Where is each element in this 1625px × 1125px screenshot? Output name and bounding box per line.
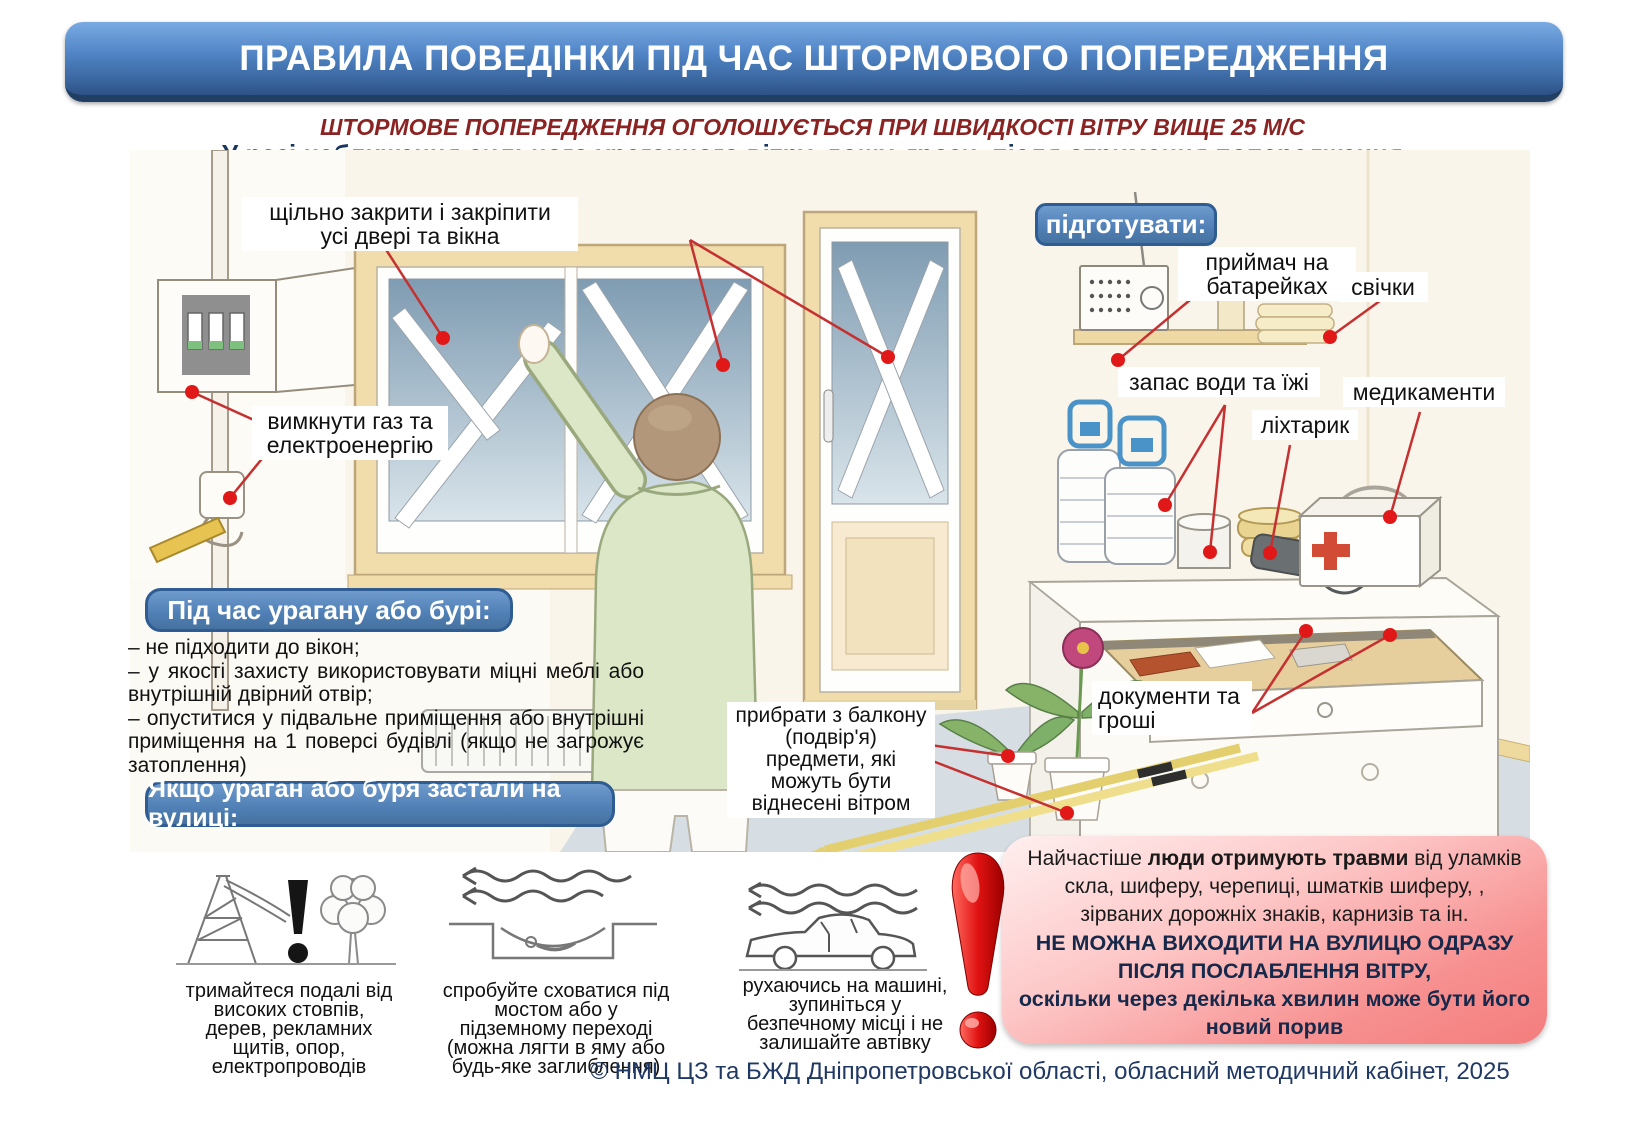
storm-condition-subtitle: ШТОРМОВЕ ПОПЕРЕДЖЕННЯ ОГОЛОШУЄТЬСЯ ПРИ Ш…	[0, 114, 1625, 141]
electrical-panel	[158, 268, 355, 392]
power-line-and-tree-icon	[168, 860, 403, 980]
warning-line-3: зірваних дорожніх знаків, карнизів та ін…	[1002, 901, 1547, 929]
car-in-wind-icon	[733, 878, 933, 978]
storm-safety-poster: ПРАВИЛА ПОВЕДІНКИ ПІД ЧАС ШТОРМОВОГО ПОП…	[0, 0, 1625, 1125]
cup	[1218, 300, 1244, 330]
warning-line-6: оскільки через декілька хвилин може бути…	[1002, 985, 1547, 1013]
during-storm-item: – у якості захисту використовувати міцні…	[128, 660, 644, 707]
underpass-shelter-icon	[445, 862, 660, 974]
label-balcony-items: прибрати з балкону (подвір'я) предмети, …	[727, 702, 935, 818]
during-storm-item: – не підходити до вікон;	[128, 636, 644, 660]
label-turn-off-gas: вимкнути газ та електроенергію	[252, 406, 448, 460]
outside-header: Якщо ураган або буря застали на вулиці:	[145, 781, 615, 827]
door-handle	[824, 390, 833, 442]
battery-radio	[1080, 266, 1168, 330]
footer-credit: © НМЦ ЦЗ та БЖД Дніпропетровської област…	[540, 1058, 1560, 1086]
title-banner: ПРАВИЛА ПОВЕДІНКИ ПІД ЧАС ШТОРМОВОГО ПОП…	[65, 22, 1563, 102]
prepare-banner: підготувати:	[1035, 203, 1217, 246]
during-storm-list: – не підходити до вікон; – у якості захи…	[128, 636, 644, 777]
during-storm-header: Під час урагану або бурі:	[145, 588, 513, 632]
first-aid-kit	[1300, 492, 1440, 586]
warning-line-2: скла, шиферу, черепиці, шматків шиферу, …	[1002, 873, 1547, 901]
injury-warning-box: Найчастіше люди отримують травми від ула…	[1002, 836, 1547, 1044]
warning-line-7: новий порив	[1002, 1013, 1547, 1041]
balcony-door	[804, 212, 976, 710]
warning-line-5: ПІСЛЯ ПОСЛАБЛЕННЯ ВІТРУ,	[1002, 957, 1547, 985]
candles	[1256, 304, 1334, 343]
during-storm-item: – опуститися у підвальне приміщення або …	[128, 707, 644, 778]
page-title: ПРАВИЛА ПОВЕДІНКИ ПІД ЧАС ШТОРМОВОГО ПОП…	[239, 39, 1388, 79]
exclamation-mark-icon	[928, 845, 1028, 1060]
warning-line-4: НЕ МОЖНА ВИХОДИТИ НА ВУЛИЦЮ ОДРАЗУ	[1002, 929, 1547, 957]
label-medicines: медикаменти	[1343, 377, 1505, 407]
label-candles: свічки	[1338, 272, 1428, 302]
label-flashlight: ліхтарик	[1252, 410, 1358, 440]
label-water-food: запас води та їжі	[1118, 367, 1320, 397]
label-close-windows: щільно закрити і закріпити усі двері та …	[242, 197, 578, 251]
warning-line-1: Найчастіше люди отримують травми від ула…	[1002, 845, 1547, 873]
label-radio: приймач на батарейках	[1178, 247, 1356, 301]
tip-caption-power-lines: тримайтеся подалі від високих стовпів, д…	[158, 982, 420, 1077]
label-documents: документи та гроші	[1092, 681, 1252, 735]
